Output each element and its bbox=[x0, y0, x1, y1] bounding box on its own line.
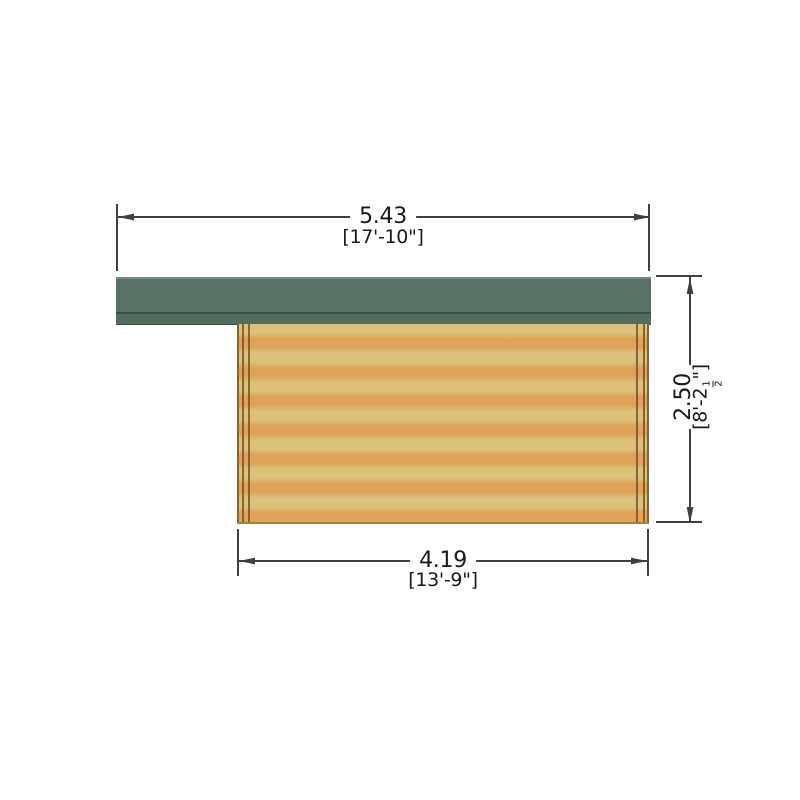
corner-trim-right-line bbox=[636, 324, 638, 524]
dim-arrow-left bbox=[239, 557, 255, 565]
corner-trim-right-line bbox=[643, 324, 645, 524]
extension-line bbox=[656, 275, 702, 277]
extension-line bbox=[237, 529, 239, 576]
half-inch-fraction: 12 bbox=[702, 381, 725, 387]
roof-panel bbox=[116, 277, 651, 312]
fraction-denominator: 2 bbox=[713, 381, 725, 387]
elevation-diagram: 5.43 [17'-10"] 4.19 [13'-9"] 2.50 [8'-21… bbox=[0, 0, 800, 800]
fraction-numerator: 1 bbox=[702, 381, 713, 387]
extension-line bbox=[656, 521, 702, 523]
top-dimension-metric-label: 5.43 bbox=[350, 206, 416, 228]
extension-line bbox=[648, 204, 650, 271]
wall-base-edge bbox=[237, 522, 649, 524]
imperial-suffix: "] bbox=[690, 364, 712, 380]
top-dimension-imperial-label: [17'-10"] bbox=[342, 228, 423, 247]
bottom-dimension-imperial-label: [13'-9"] bbox=[408, 571, 478, 590]
log-wall bbox=[237, 324, 649, 524]
height-dimension-imperial-label: [8'-212"] bbox=[692, 364, 725, 430]
imperial-prefix: [8'-2 bbox=[690, 388, 712, 430]
dim-arrow-left bbox=[118, 213, 134, 221]
extension-line bbox=[116, 204, 118, 271]
dim-arrow-right bbox=[631, 557, 647, 565]
extension-line bbox=[647, 529, 649, 576]
corner-trim-left-line bbox=[248, 324, 250, 524]
corner-trim-left-line bbox=[242, 324, 244, 524]
dim-arrow-up bbox=[686, 278, 694, 294]
